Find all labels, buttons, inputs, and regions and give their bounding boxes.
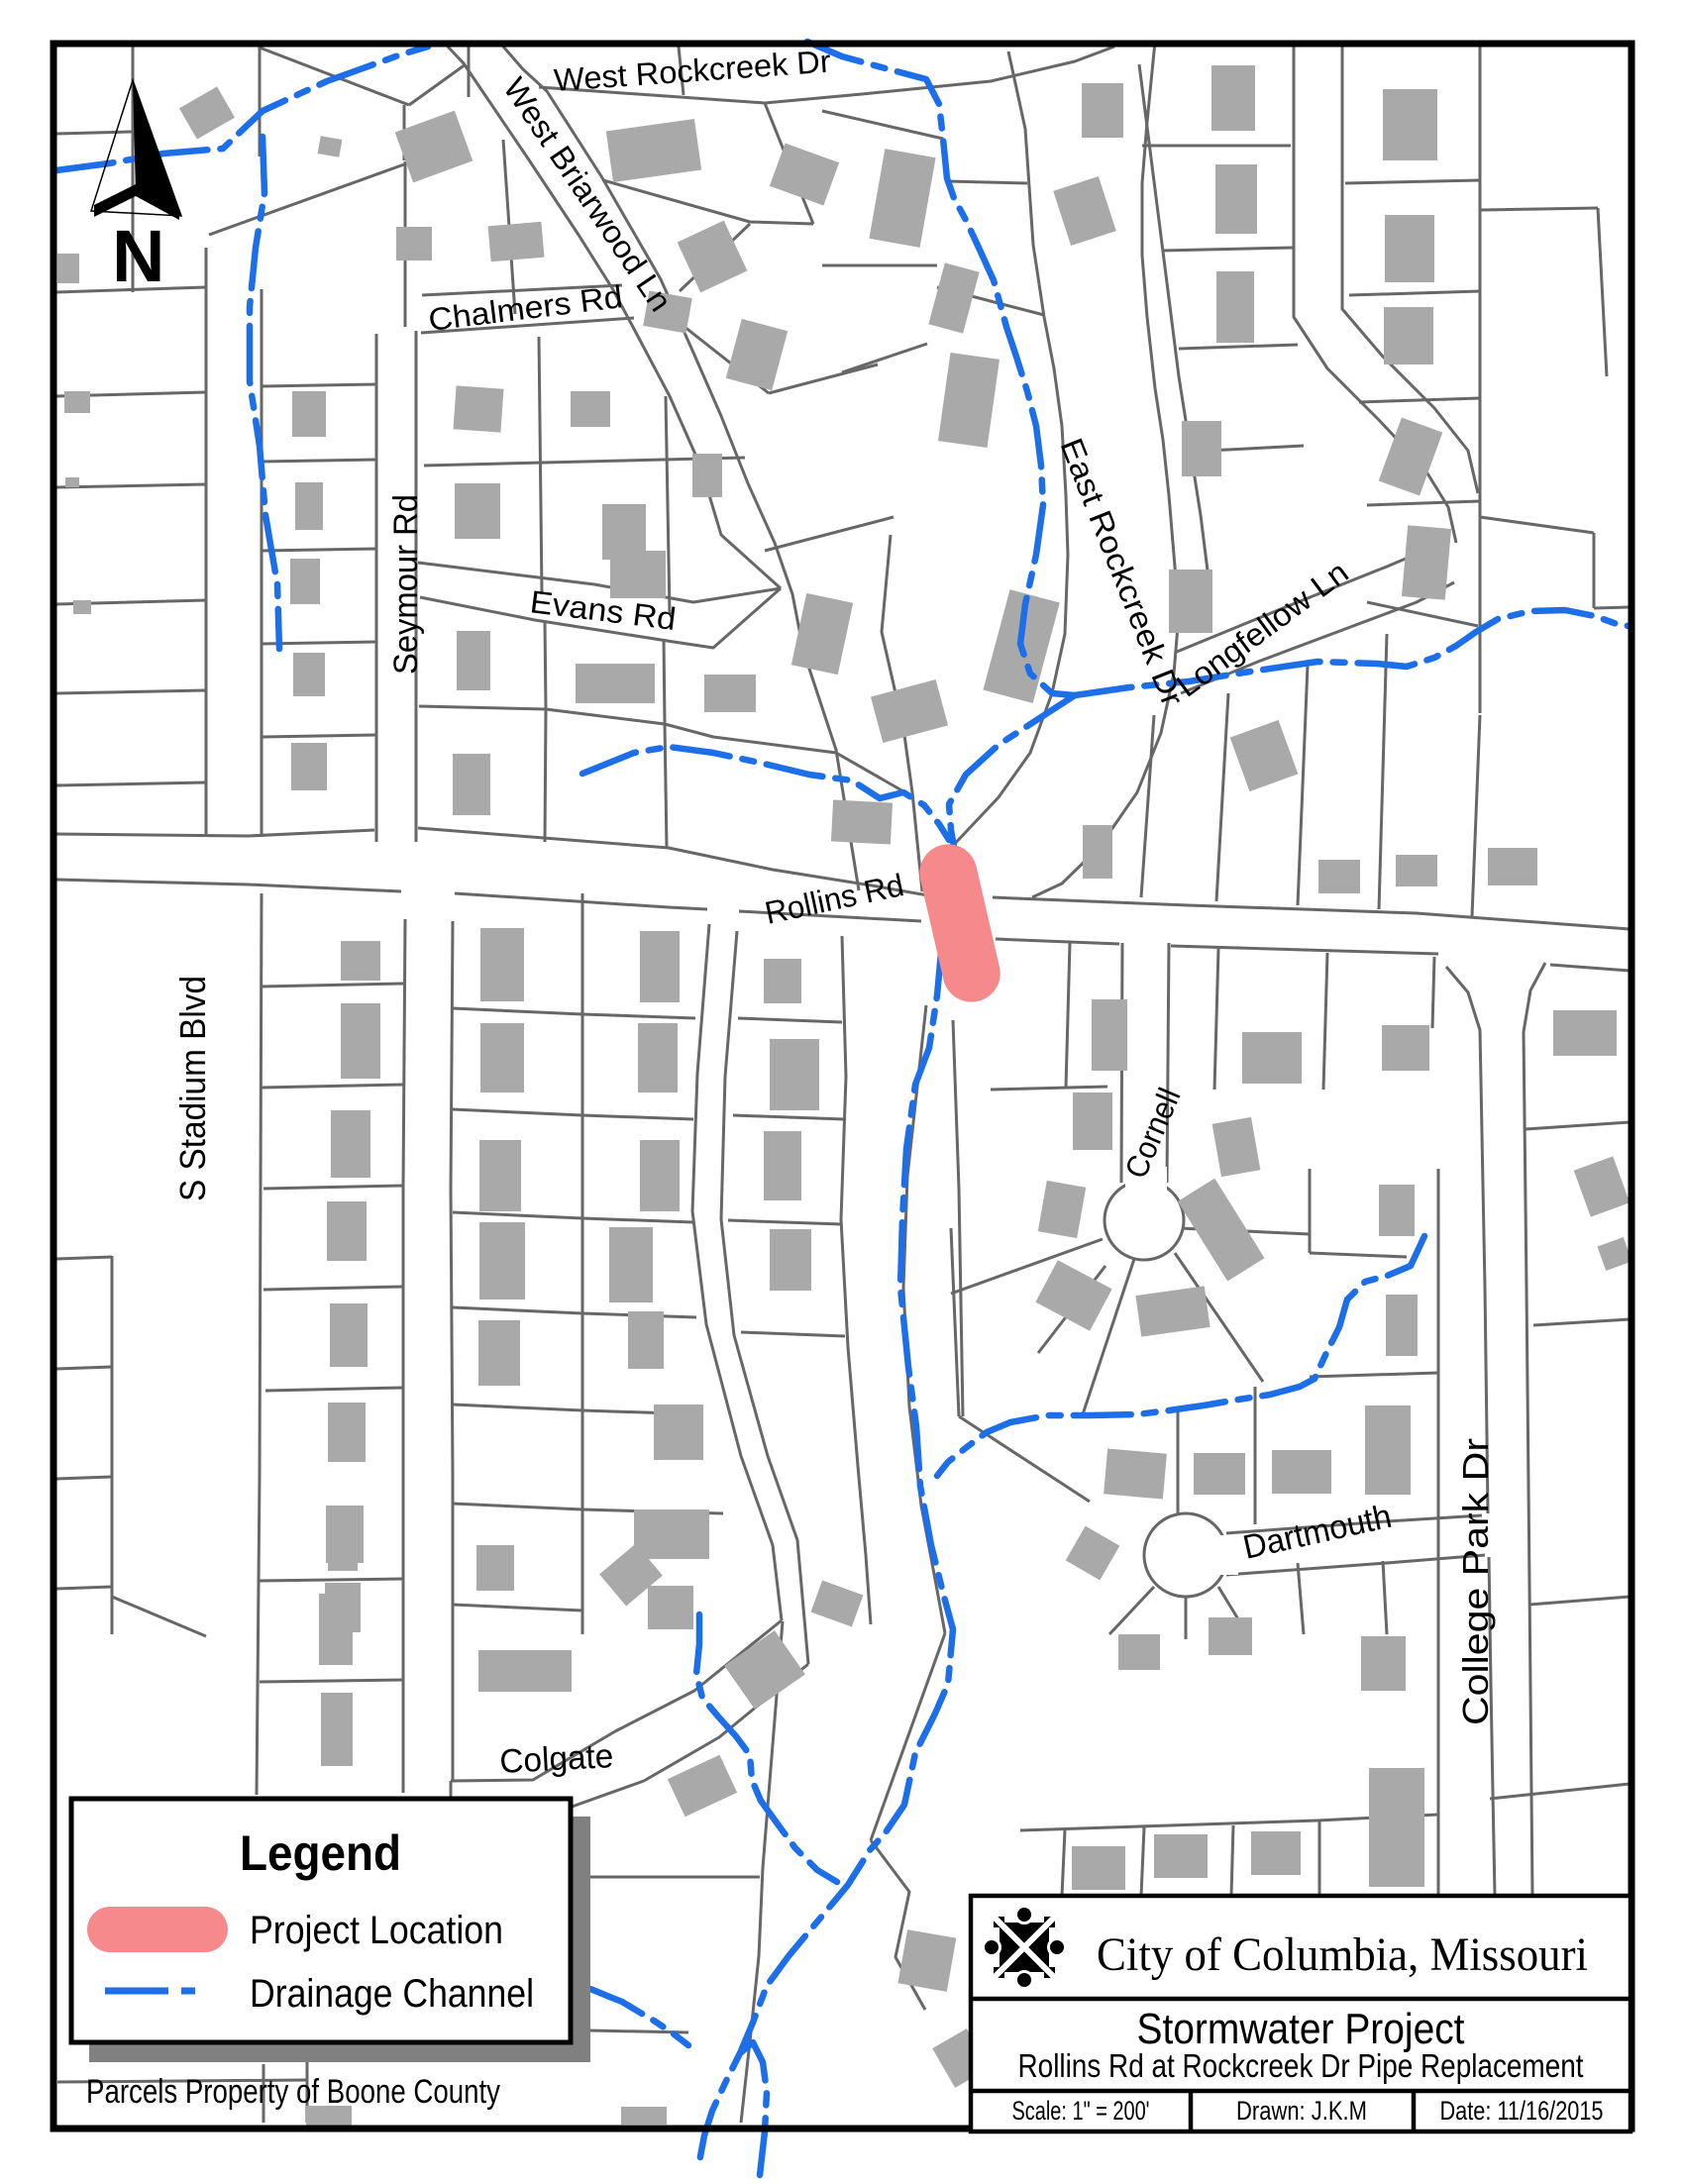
svg-text:Drawn: J.K.M: Drawn: J.K.M	[1236, 2096, 1367, 2126]
svg-text:Parcels Property of Boone Coun: Parcels Property of Boone County	[86, 2073, 500, 2111]
svg-text:College Park Dr: College Park Dr	[1455, 1438, 1496, 1725]
svg-text:Seymour Rd: Seymour Rd	[387, 494, 425, 675]
svg-text:Scale: 1" = 200': Scale: 1" = 200'	[1012, 2096, 1150, 2126]
svg-text:Drainage Channel: Drainage Channel	[250, 1972, 534, 2016]
svg-text:City of Columbia, Missouri: City of Columbia, Missouri	[1097, 1928, 1588, 1981]
svg-text:S Stadium Blvd: S Stadium Blvd	[172, 976, 213, 1201]
svg-text:Legend: Legend	[240, 1825, 401, 1881]
svg-text:N: N	[112, 215, 164, 297]
svg-text:Project Location: Project Location	[250, 1909, 503, 1952]
svg-text:Colgate: Colgate	[498, 1737, 614, 1781]
svg-text:Rollins Rd at Rockcreek Dr Pip: Rollins Rd at Rockcreek Dr Pipe Replacem…	[1018, 2047, 1584, 2084]
svg-text:Stormwater Project: Stormwater Project	[1137, 2005, 1465, 2053]
svg-text:Date: 11/16/2015: Date: 11/16/2015	[1440, 2096, 1604, 2126]
